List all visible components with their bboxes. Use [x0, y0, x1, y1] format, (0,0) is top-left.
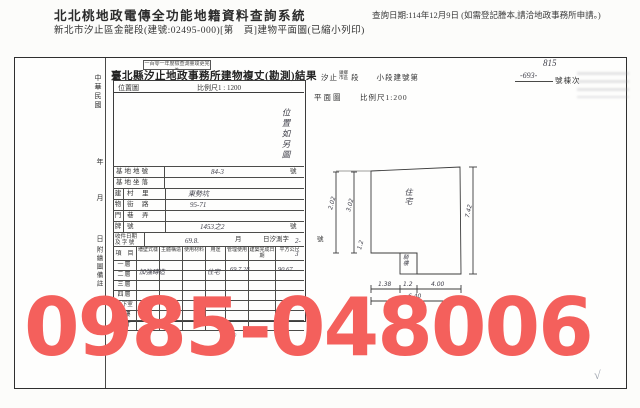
handwritten-area: 90.67	[278, 266, 293, 273]
room-label: 住宅	[403, 188, 414, 206]
handwritten-use: 住宅	[207, 266, 220, 276]
dim-right: 7.42	[464, 204, 474, 219]
document-subtitle: 新北市汐止區金龍段(建號:02495-000)[第 頁]建物平面圖(已縮小列印)	[54, 22, 365, 36]
building-outline	[371, 167, 461, 274]
watermark: 0985-048006	[24, 288, 592, 368]
check-mark: √	[594, 368, 601, 383]
handwritten-completion-date: 69.7.28	[230, 266, 250, 273]
handwritten-structure: 加強磚造	[139, 266, 165, 276]
dim-small: 1.2	[356, 239, 365, 250]
porch-label: 騎樓	[403, 255, 411, 267]
query-date-note: 查詢日期:114年12月9日 (如需登記謄本,請洽地政事務所申請。)	[372, 9, 601, 21]
